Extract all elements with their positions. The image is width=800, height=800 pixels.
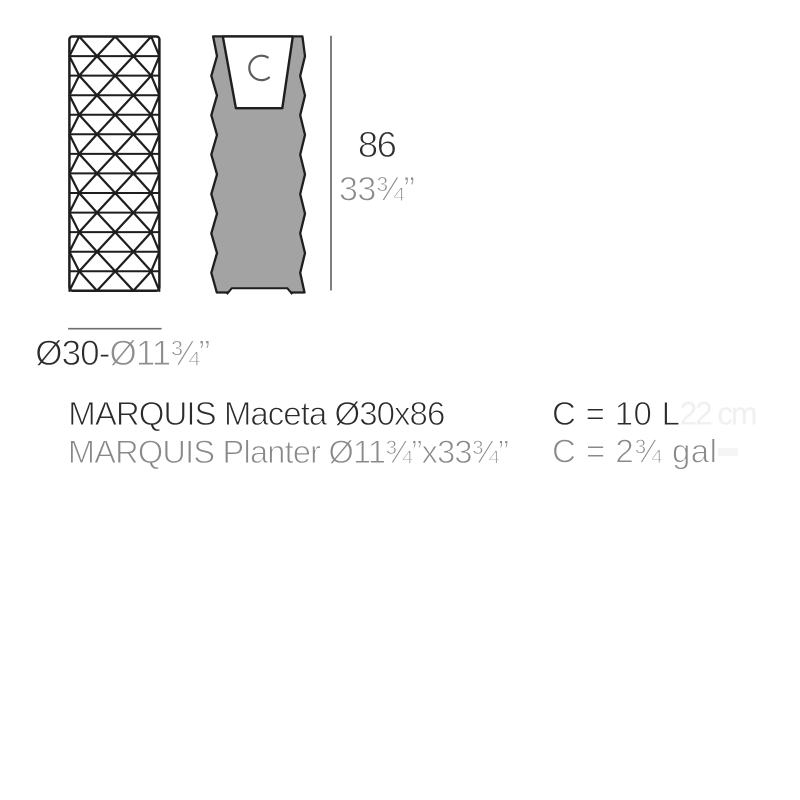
svg-text:Ø30-Ø11¾”: Ø30-Ø11¾” [35, 334, 210, 373]
svg-text:86: 86 [358, 124, 397, 165]
svg-text:33¾”: 33¾” [339, 170, 415, 208]
svg-text:MARQUIS Maceta Ø30x86: MARQUIS Maceta Ø30x86 [68, 395, 445, 432]
svg-text:MARQUIS Planter Ø11¾”x33¾”: MARQUIS Planter Ø11¾”x33¾” [68, 434, 509, 470]
svg-text:C = 10 L: C = 10 L [552, 395, 680, 432]
svg-text:C = 2¾ gal: C = 2¾ gal [552, 432, 717, 469]
svg-text:22 cm: 22 cm [680, 396, 758, 432]
